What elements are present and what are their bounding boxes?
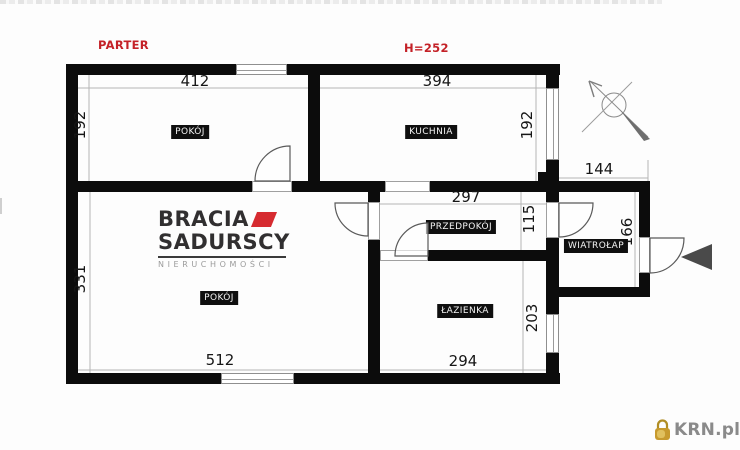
passage-kitchen-hall: [385, 181, 430, 192]
wall-hall-left: [368, 240, 380, 384]
dim-kuchnia-height: 192: [518, 111, 536, 140]
room-label-pokoj-bottom: POKÓJ: [200, 291, 238, 305]
dim-pokoj-top-width: 412: [181, 72, 210, 90]
floor-plan: PARTER H=252 POKÓJ KUCHNIA PRZEDPOKÓJ PO…: [0, 0, 740, 450]
dim-przedpokoj-width: 297: [452, 188, 481, 206]
gold-padlock-icon: [653, 418, 672, 441]
window-top: [236, 64, 287, 75]
wall-hall-left: [368, 181, 380, 202]
cropped-text-artifact: [0, 0, 662, 4]
dim-lazienka-height: 203: [523, 304, 541, 333]
wall-right-exterior: [546, 64, 559, 88]
floor-label: PARTER: [98, 38, 149, 52]
door-opening-room-top: [252, 181, 292, 192]
window-bottom: [221, 373, 294, 384]
room-label-przedpokoj: PRZEDPOKÓJ: [426, 220, 496, 234]
entrance-arrow-icon: [681, 244, 712, 270]
watermark-site-name: KRN.pl: [674, 420, 740, 440]
room-label-lazienka: ŁAZIENKA: [437, 304, 493, 318]
door-swing-entrance: [650, 238, 684, 273]
dim-pokoj-top-height: 192: [71, 111, 89, 140]
wall-bathroom-top: [428, 250, 559, 261]
dim-lazienka-width: 294: [449, 352, 478, 370]
wall-middle-horizontal: [66, 181, 252, 192]
dim-wiatrolap-width: 144: [585, 160, 614, 178]
room-label-pokoj-top: POKÓJ: [171, 125, 209, 139]
room-label-wiatrolap: WIATROŁAP: [564, 239, 628, 253]
door-opening-entrance: [639, 237, 650, 273]
wall-bottom-exterior: [66, 373, 560, 384]
door-swing-room-top: [255, 146, 290, 181]
dim-kuchnia-width: 394: [423, 72, 452, 90]
ceiling-height-label: H=252: [404, 41, 449, 55]
door-opening-bathroom: [380, 250, 428, 261]
agency-tagline: NIERUCHOMOŚCI: [158, 260, 290, 269]
dim-pokoj-bottom-width: 512: [206, 351, 235, 369]
room-label-kuchnia: KUCHNIA: [405, 125, 457, 139]
agency-logo-red-mark-icon: [251, 212, 277, 227]
wall-vestibule-right: [639, 181, 650, 237]
agency-name-line2: SADURSCY: [158, 231, 290, 254]
agency-logo-rule: [158, 256, 286, 258]
window-bathroom: [546, 314, 559, 353]
edge-artifact: [0, 198, 2, 214]
agency-logo: BRACIA SADURSCY NIERUCHOMOŚCI: [158, 208, 290, 269]
north-arrow-compass-icon: [582, 81, 650, 141]
door-opening-room-bottom: [368, 202, 380, 240]
door-swing-room-bottom: [335, 203, 368, 236]
door-opening-vestibule: [546, 202, 559, 238]
dim-przedpokoj-height: 115: [520, 205, 538, 234]
door-swing-vestibule: [559, 203, 593, 237]
agency-name-line1: BRACIA: [158, 208, 249, 231]
wall-kitchen-divider: [308, 64, 320, 192]
portal-watermark: KRN.pl: [653, 418, 740, 441]
wall-right-exterior: [546, 353, 559, 384]
dim-pokoj-bottom-height: 331: [71, 265, 89, 294]
wall-vestibule-bottom: [546, 287, 650, 297]
window-kitchen: [546, 88, 559, 160]
